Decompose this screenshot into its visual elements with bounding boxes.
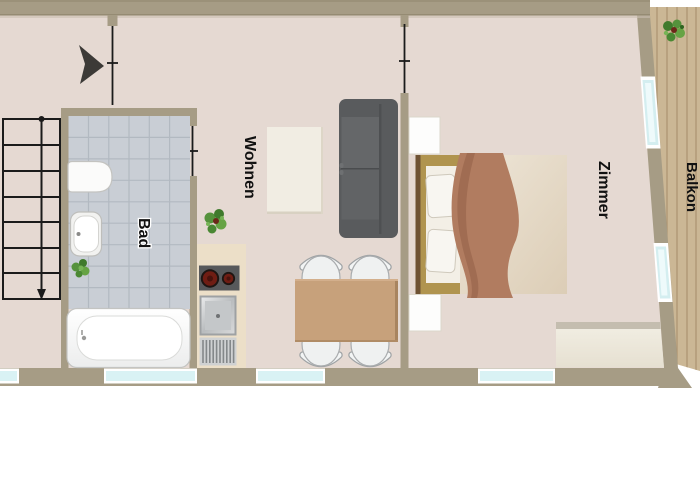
svg-text:Wohnen: Wohnen <box>241 136 258 199</box>
svg-text:Balkon: Balkon <box>683 162 700 212</box>
svg-text:Bad: Bad <box>135 218 152 248</box>
svg-text:Zimmer: Zimmer <box>595 161 612 219</box>
